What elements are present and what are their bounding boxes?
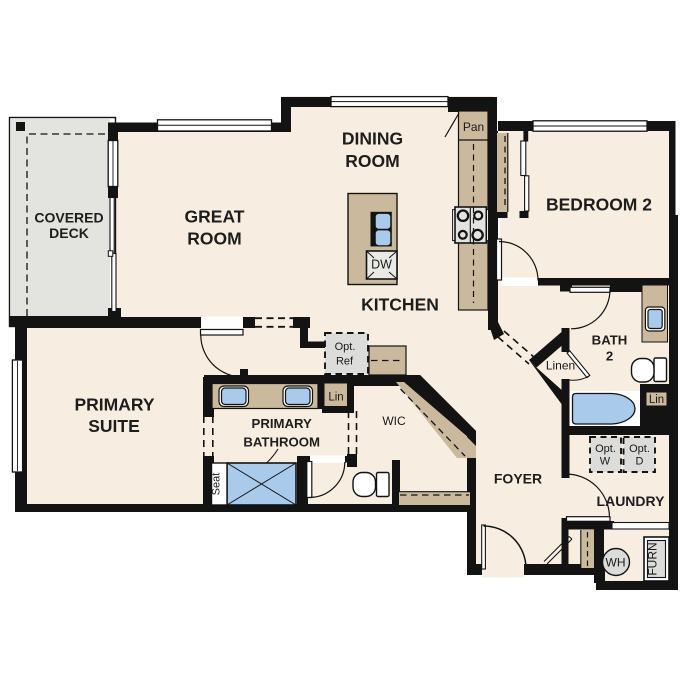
svg-text:BEDROOM 2: BEDROOM 2	[546, 194, 652, 214]
svg-text:COVERED: COVERED	[34, 209, 103, 225]
svg-text:Opt.: Opt.	[595, 443, 616, 455]
svg-text:ROOM: ROOM	[345, 151, 399, 171]
svg-text:PRIMARY: PRIMARY	[252, 416, 313, 431]
svg-text:Opt.: Opt.	[629, 443, 650, 455]
svg-text:WH: WH	[606, 555, 626, 569]
svg-text:Pan: Pan	[463, 120, 484, 134]
svg-text:Seat: Seat	[211, 473, 223, 496]
svg-text:Lin: Lin	[328, 392, 343, 404]
svg-text:BATHROOM: BATHROOM	[243, 435, 320, 450]
svg-text:Lin: Lin	[649, 394, 664, 406]
svg-text:BATH: BATH	[592, 333, 628, 348]
svg-text:LAUNDRY: LAUNDRY	[597, 493, 666, 509]
svg-text:SUITE: SUITE	[88, 416, 140, 436]
svg-text:WIC: WIC	[382, 414, 406, 428]
svg-text:ROOM: ROOM	[187, 228, 241, 248]
svg-text:FOYER: FOYER	[494, 471, 542, 487]
svg-text:DECK: DECK	[49, 225, 89, 241]
svg-text:DW: DW	[371, 258, 392, 272]
svg-text:FURN: FURN	[646, 542, 660, 575]
svg-text:Opt.: Opt.	[335, 341, 356, 353]
svg-text:W: W	[600, 456, 611, 468]
svg-text:DINING: DINING	[342, 129, 403, 149]
svg-text:D: D	[636, 456, 644, 468]
svg-text:Ref: Ref	[336, 356, 354, 368]
svg-text:GREAT: GREAT	[185, 206, 245, 226]
svg-text:KITCHEN: KITCHEN	[361, 294, 439, 314]
svg-text:Linen: Linen	[546, 359, 575, 373]
svg-text:PRIMARY: PRIMARY	[74, 395, 154, 415]
svg-text:2: 2	[606, 349, 613, 364]
